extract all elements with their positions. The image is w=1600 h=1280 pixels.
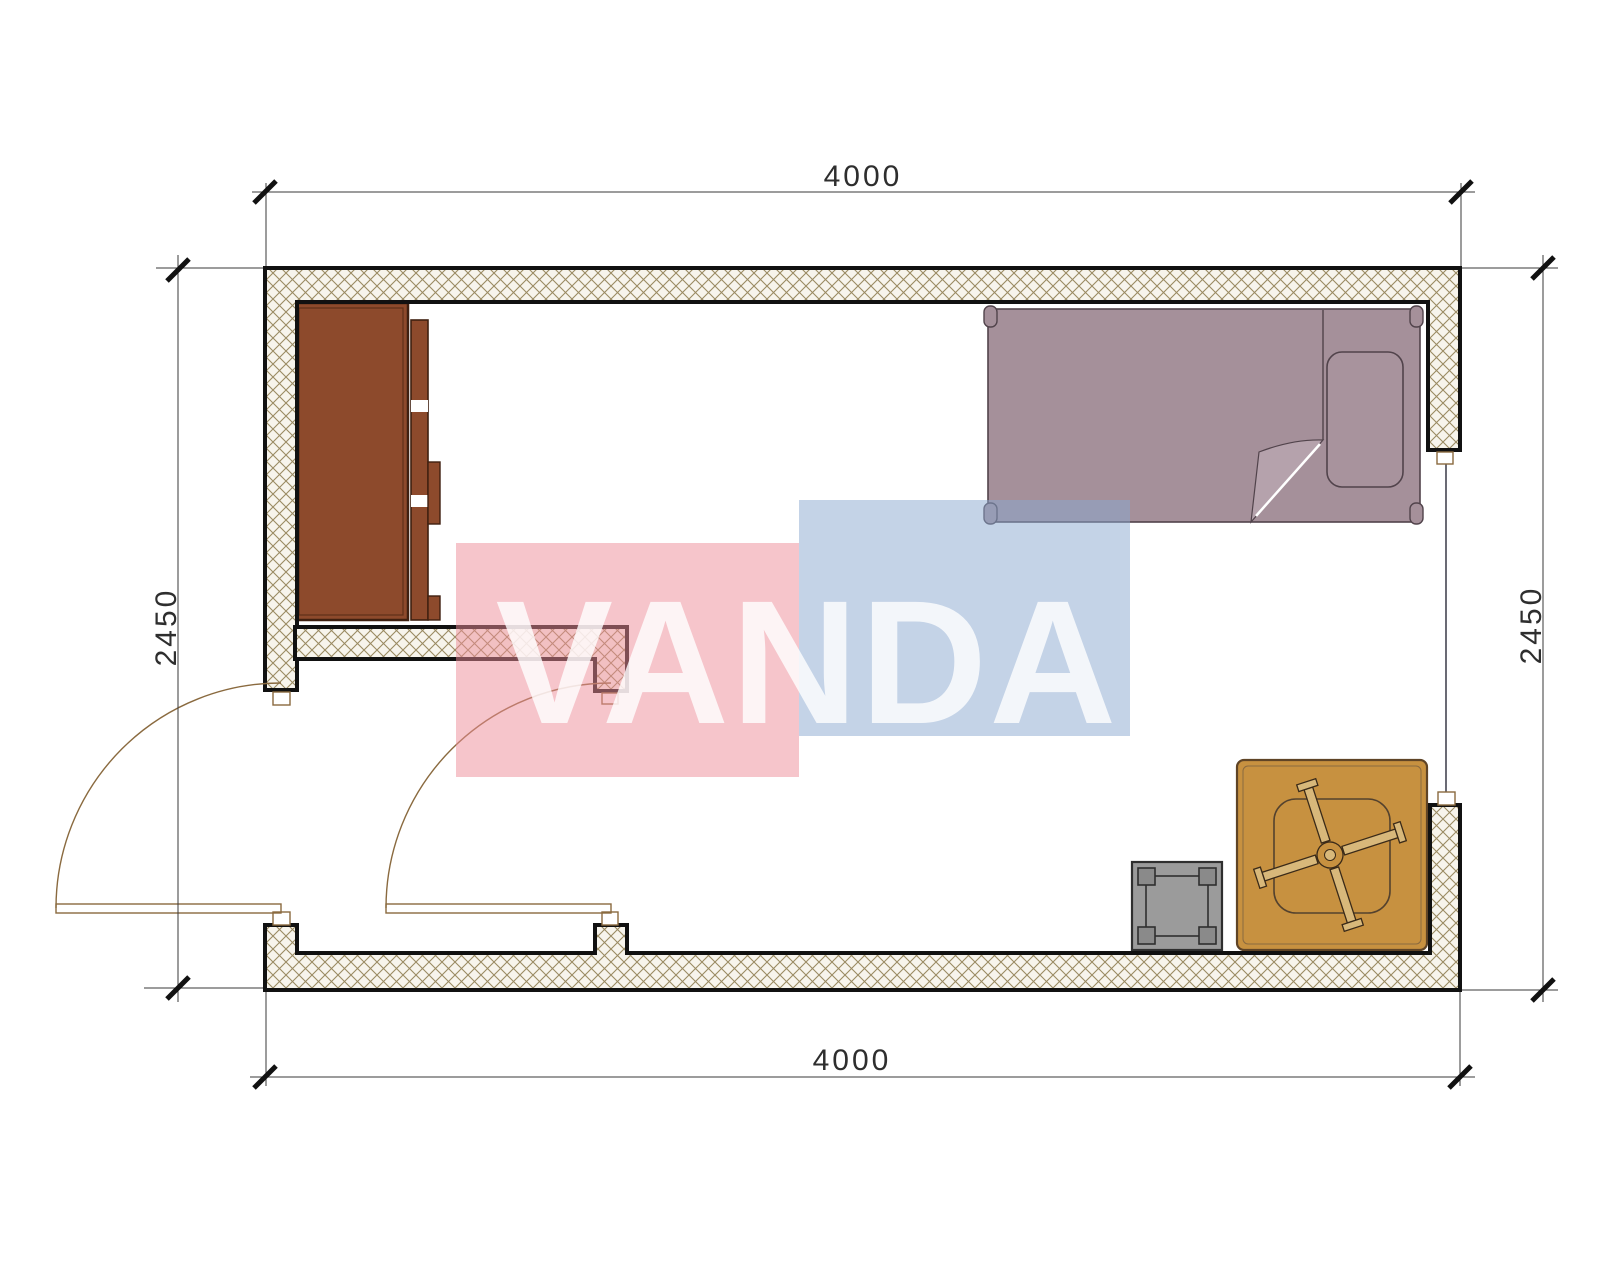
bed-post-top-right — [1410, 306, 1423, 327]
wardrobe-handle-2 — [428, 596, 440, 620]
wardrobe-handle-1 — [428, 462, 440, 524]
table — [1233, 758, 1427, 952]
wardrobe-door-strip — [411, 320, 428, 620]
floor-plan-page: 4000 4000 2450 2450 VANDA — [0, 0, 1600, 1280]
wardrobe-gap-1 — [411, 400, 428, 412]
dimension-left-label: 2450 — [150, 588, 183, 667]
dimension-top-label: 4000 — [824, 160, 903, 193]
bed-post-bottom-right — [1410, 503, 1423, 524]
wardrobe-gap-2 — [411, 495, 428, 507]
window-jamb-bottom — [1438, 792, 1455, 805]
floor-plan-drawing: 4000 4000 2450 2450 VANDA — [0, 0, 1600, 1280]
stool-leg — [1199, 927, 1216, 944]
stool-leg — [1199, 868, 1216, 885]
door-inner-jamb-bottom — [602, 912, 618, 925]
wardrobe — [294, 303, 440, 620]
window-jamb-top — [1437, 452, 1453, 464]
bed — [984, 306, 1423, 524]
watermark-text: VANDA — [496, 565, 1119, 761]
pillow — [1327, 352, 1403, 487]
dimension-bottom-label: 4000 — [813, 1044, 892, 1077]
dimension-right-label: 2450 — [1515, 586, 1548, 665]
wardrobe-body — [294, 303, 408, 620]
stool-leg — [1138, 927, 1155, 944]
stool — [1132, 862, 1222, 950]
stool-leg — [1138, 868, 1155, 885]
door-left-jamb-bottom — [273, 912, 290, 925]
bed-post-top-left — [984, 306, 997, 327]
door-left-jamb-top — [273, 692, 290, 705]
